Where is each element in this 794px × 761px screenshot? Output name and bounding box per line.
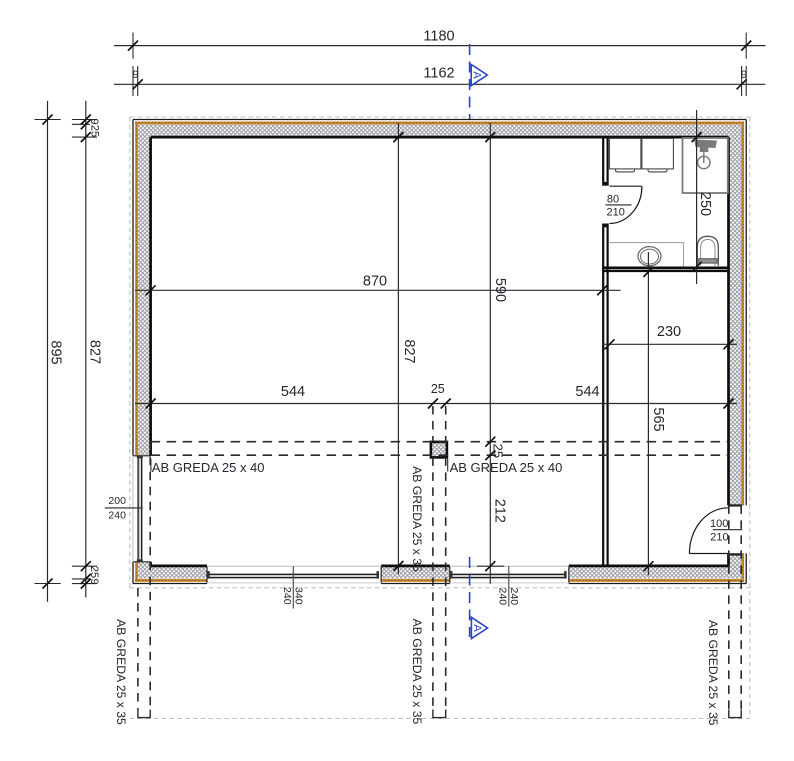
svg-text:25: 25 bbox=[88, 566, 100, 578]
svg-text:AB GREDA 25 x 35: AB GREDA 25 x 35 bbox=[114, 619, 128, 725]
svg-text:544: 544 bbox=[281, 384, 305, 400]
svg-text:240: 240 bbox=[508, 588, 520, 606]
svg-text:250: 250 bbox=[697, 192, 713, 216]
svg-text:9: 9 bbox=[88, 578, 100, 584]
svg-text:A: A bbox=[471, 624, 483, 632]
svg-text:AB GREDA 25 x 35: AB GREDA 25 x 35 bbox=[706, 620, 720, 726]
svg-text:A: A bbox=[471, 71, 483, 79]
svg-text:210: 210 bbox=[710, 532, 728, 544]
svg-text:827: 827 bbox=[401, 339, 417, 363]
svg-text:1162: 1162 bbox=[423, 65, 454, 81]
svg-text:210: 210 bbox=[607, 207, 625, 219]
svg-text:25: 25 bbox=[431, 382, 445, 396]
svg-text:AB GREDA 25 x 35: AB GREDA 25 x 35 bbox=[410, 619, 424, 725]
svg-text:230: 230 bbox=[657, 324, 681, 340]
svg-text:212: 212 bbox=[491, 499, 507, 523]
svg-text:590: 590 bbox=[492, 278, 508, 302]
svg-text:870: 870 bbox=[363, 274, 387, 290]
svg-text:340: 340 bbox=[293, 587, 305, 605]
svg-text:895: 895 bbox=[48, 340, 64, 364]
svg-text:9: 9 bbox=[741, 69, 747, 81]
svg-text:25: 25 bbox=[89, 125, 101, 137]
svg-text:200: 200 bbox=[108, 495, 126, 507]
svg-text:240: 240 bbox=[497, 588, 509, 606]
svg-text:240: 240 bbox=[108, 509, 126, 521]
svg-text:AB GREDA 25 x 35: AB GREDA 25 x 35 bbox=[410, 466, 424, 572]
svg-text:565: 565 bbox=[650, 407, 666, 431]
svg-text:544: 544 bbox=[575, 384, 599, 400]
svg-text:1180: 1180 bbox=[423, 29, 454, 45]
svg-text:100: 100 bbox=[710, 518, 728, 530]
svg-text:80: 80 bbox=[607, 193, 619, 205]
svg-text:827: 827 bbox=[87, 340, 103, 364]
svg-text:AB GREDA 25 x 40: AB GREDA 25 x 40 bbox=[450, 460, 563, 475]
svg-text:240: 240 bbox=[281, 587, 293, 605]
svg-text:25: 25 bbox=[490, 444, 505, 458]
svg-text:9: 9 bbox=[88, 118, 100, 124]
svg-text:AB GREDA 25 x 40: AB GREDA 25 x 40 bbox=[152, 460, 265, 475]
svg-text:9: 9 bbox=[132, 69, 138, 81]
